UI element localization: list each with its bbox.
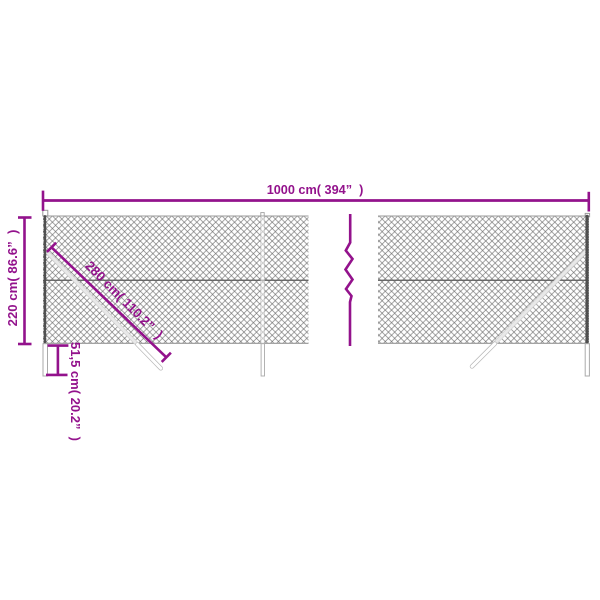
svg-text:220 cm( 86.6” ): 220 cm( 86.6” ) (5, 230, 20, 327)
svg-text:1000 cm( 394” ): 1000 cm( 394” ) (267, 183, 364, 197)
svg-text:51,5 cm( 20.2” ): 51,5 cm( 20.2” ) (68, 342, 83, 441)
